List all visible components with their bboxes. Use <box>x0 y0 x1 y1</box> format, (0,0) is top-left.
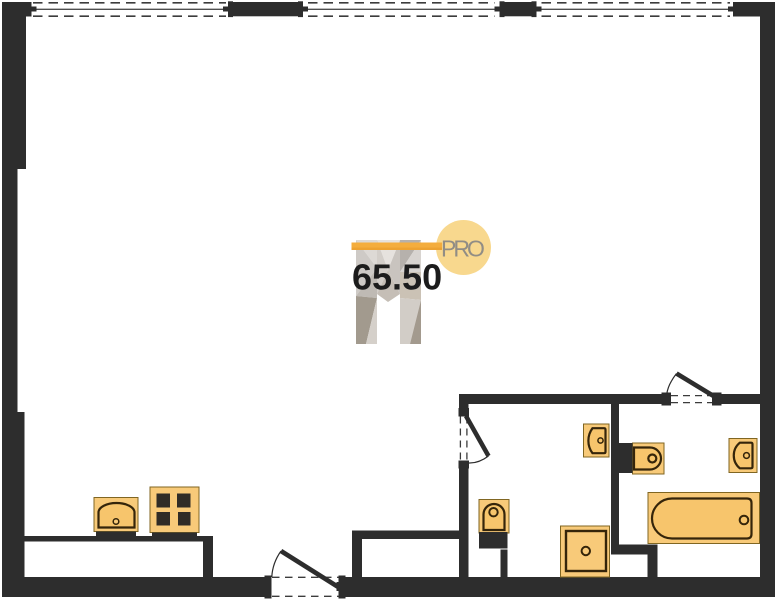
svg-text:65.50: 65.50 <box>352 256 442 297</box>
svg-text:PRO: PRO <box>441 236 484 262</box>
